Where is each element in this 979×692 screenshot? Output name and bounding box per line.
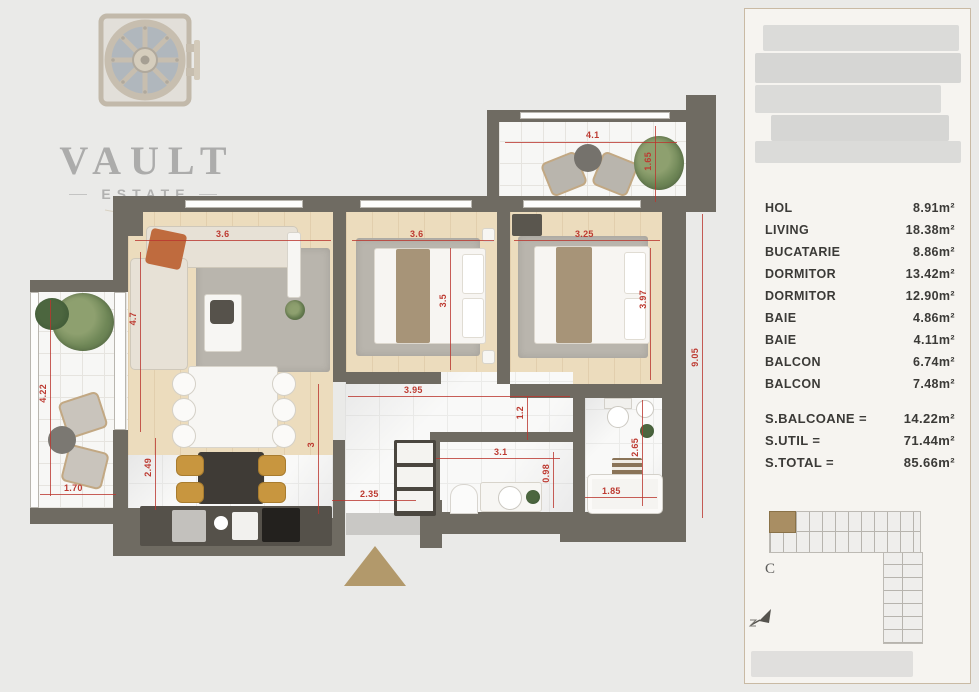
dimension-label: 2.49 (143, 458, 153, 477)
plant (285, 300, 305, 320)
dishwasher (172, 510, 206, 542)
dimension-label: 4.7 (128, 312, 138, 325)
room-row: BALCON 7.48m² (765, 373, 955, 395)
pillow (462, 254, 484, 294)
dimension-line (650, 248, 651, 380)
dimension-line (505, 142, 677, 143)
balcony-table (574, 144, 602, 172)
redacted-block (755, 141, 961, 163)
toilet (607, 406, 629, 428)
dimension-label: 2.35 (360, 489, 379, 499)
dimension-label: 1.85 (602, 486, 621, 496)
dimension-line (348, 396, 570, 397)
room-area: 8.91m² (913, 201, 955, 215)
pillow (624, 252, 646, 294)
throw-blanket (145, 228, 188, 271)
dimension-line (155, 438, 156, 510)
dining-chair (172, 398, 196, 422)
redacted-block (751, 651, 913, 677)
keyplan-wing-right (883, 552, 923, 644)
kitchen-chair (258, 455, 286, 476)
wall (113, 430, 128, 524)
room-area: 4.11m² (914, 333, 955, 347)
dimension-line (527, 396, 528, 440)
dimension-label: 1.2 (515, 406, 525, 419)
room-area: 7.48m² (913, 377, 955, 391)
room-label: BALCON (765, 355, 821, 369)
dimension-line (436, 458, 560, 459)
dimension-label: 3.6 (410, 229, 423, 239)
wall (333, 440, 345, 518)
total-row: S.BALCOANE = 14.22m² (765, 407, 955, 429)
room-label: DORMITOR (765, 289, 836, 303)
washbasin (636, 400, 654, 418)
total-label: S.BALCOANE = (765, 411, 867, 426)
dining-chair (172, 424, 196, 448)
balcony-table (48, 426, 76, 454)
wall (487, 110, 499, 208)
shower-niche (450, 484, 478, 514)
dimension-label: 3.5 (438, 294, 448, 307)
room-label: BAIE (765, 333, 796, 347)
redacted-block (755, 53, 961, 83)
wall (573, 396, 585, 516)
dimension-line (50, 300, 51, 496)
kitchen-chair (258, 482, 286, 503)
room-area: 12.90m² (906, 289, 955, 303)
dimension-label: 9.05 (690, 348, 700, 367)
dimension-line (352, 240, 494, 241)
dining-chair (272, 372, 296, 396)
dimension-line (332, 500, 416, 501)
dimension-line (702, 214, 703, 518)
dimension-line (450, 248, 451, 370)
dimension-label: 3.1 (494, 447, 507, 457)
room-row: LIVING 18.38m² (765, 219, 955, 241)
total-row: S.TOTAL = 85.66m² (765, 451, 955, 473)
keyplan-section-label: C (765, 561, 775, 578)
dimension-label: 3 (306, 442, 316, 447)
wardrobe-shelf (397, 467, 433, 487)
wall (430, 512, 580, 534)
washbasin (498, 486, 522, 510)
entrance-arrow-icon (344, 546, 406, 586)
room-area: 4.86m² (913, 311, 955, 325)
room-row: HOL 8.91m² (765, 197, 955, 219)
sofa (130, 258, 188, 370)
dimension-line (553, 452, 554, 508)
cutting-board (232, 512, 258, 540)
dimension-line (585, 497, 657, 498)
redacted-block (763, 25, 959, 51)
plant (526, 490, 540, 504)
keyplan-unit-highlight (769, 511, 796, 533)
kitchen-chair (176, 482, 204, 503)
total-label: S.TOTAL = (765, 455, 834, 470)
dimension-label: 3.25 (575, 229, 594, 239)
wardrobe-shelf (397, 443, 433, 463)
wall (333, 212, 346, 382)
side-table (210, 300, 234, 324)
window (520, 112, 670, 119)
dimension-line (135, 240, 331, 241)
balcony-door (114, 292, 126, 430)
window (185, 200, 303, 208)
bed-blanket (396, 249, 430, 343)
wardrobe-shelf (397, 491, 433, 511)
dining-chair (272, 424, 296, 448)
dimension-line (514, 240, 660, 241)
dimension-label: 4.1 (586, 130, 599, 140)
wall (346, 372, 441, 384)
kitchen-table (198, 452, 264, 504)
dresser (512, 214, 542, 236)
room-label: LIVING (765, 223, 809, 237)
room-row: DORMITOR 12.90m² (765, 285, 955, 307)
total-value: 71.44m² (904, 433, 955, 448)
room-area: 18.38m² (906, 223, 955, 237)
room-label: HOL (765, 201, 793, 215)
dimension-label: 0.98 (541, 464, 551, 483)
pillow (462, 298, 484, 338)
room-row: BAIE 4.11m² (765, 329, 955, 351)
wall (662, 212, 686, 520)
bathtub (587, 474, 663, 514)
sink (214, 516, 228, 530)
total-row: S.UTIL = 71.44m² (765, 429, 955, 451)
room-row: BUCATARIE 8.86m² (765, 241, 955, 263)
room-row: BAIE 4.86m² (765, 307, 955, 329)
dimension-label: 4.22 (38, 384, 48, 403)
info-panel: HOL 8.91m² LIVING 18.38m² BUCATARIE 8.86… (744, 8, 971, 684)
wall (497, 212, 510, 384)
tv-console (287, 232, 301, 298)
room-row: DORMITOR 13.42m² (765, 263, 955, 285)
total-label: S.UTIL = (765, 433, 820, 448)
dimension-line (642, 400, 643, 506)
room-area: 13.42m² (906, 267, 955, 281)
room-row: BALCON 6.74m² (765, 351, 955, 373)
nightstand (482, 350, 495, 364)
dimension-line (40, 494, 116, 495)
redacted-block (755, 85, 941, 113)
dimension-line (655, 126, 656, 202)
dimension-label: 3.97 (638, 290, 648, 309)
dimension-line (318, 384, 319, 514)
plant (35, 298, 69, 330)
wall (30, 280, 128, 292)
room-label: BAIE (765, 311, 796, 325)
kitchen-chair (176, 455, 204, 476)
dimension-label: 1.70 (64, 483, 83, 493)
plant (634, 136, 684, 190)
bed-blanket (556, 247, 592, 343)
redacted-block (771, 115, 949, 141)
north-arrow-icon (747, 601, 781, 631)
floorplan-page: VAULT ESTATE (0, 0, 979, 692)
dimension-label: 3.6 (216, 229, 229, 239)
room-area: 6.74m² (913, 355, 955, 369)
dining-chair (272, 398, 296, 422)
dimension-label: 1.65 (643, 152, 653, 171)
dimension-line (140, 252, 141, 432)
floor-plan: 3.6 3.6 3.25 4.1 3.95 2.35 3.1 1.85 1.70… (0, 0, 740, 692)
total-value: 85.66m² (904, 455, 955, 470)
stove (262, 508, 300, 542)
dining-chair (172, 372, 196, 396)
dimension-label: 3.95 (404, 385, 423, 395)
wall (686, 95, 716, 212)
wall (430, 432, 575, 442)
room-label: BUCATARIE (765, 245, 840, 259)
window (360, 200, 472, 208)
room-area: 8.86m² (913, 245, 955, 259)
dining-table (188, 366, 278, 448)
total-value: 14.22m² (904, 411, 955, 426)
window (523, 200, 641, 208)
room-label: BALCON (765, 377, 821, 391)
entrance-mat (346, 513, 420, 535)
room-label: DORMITOR (765, 267, 836, 281)
dimension-label: 2.65 (630, 438, 640, 457)
